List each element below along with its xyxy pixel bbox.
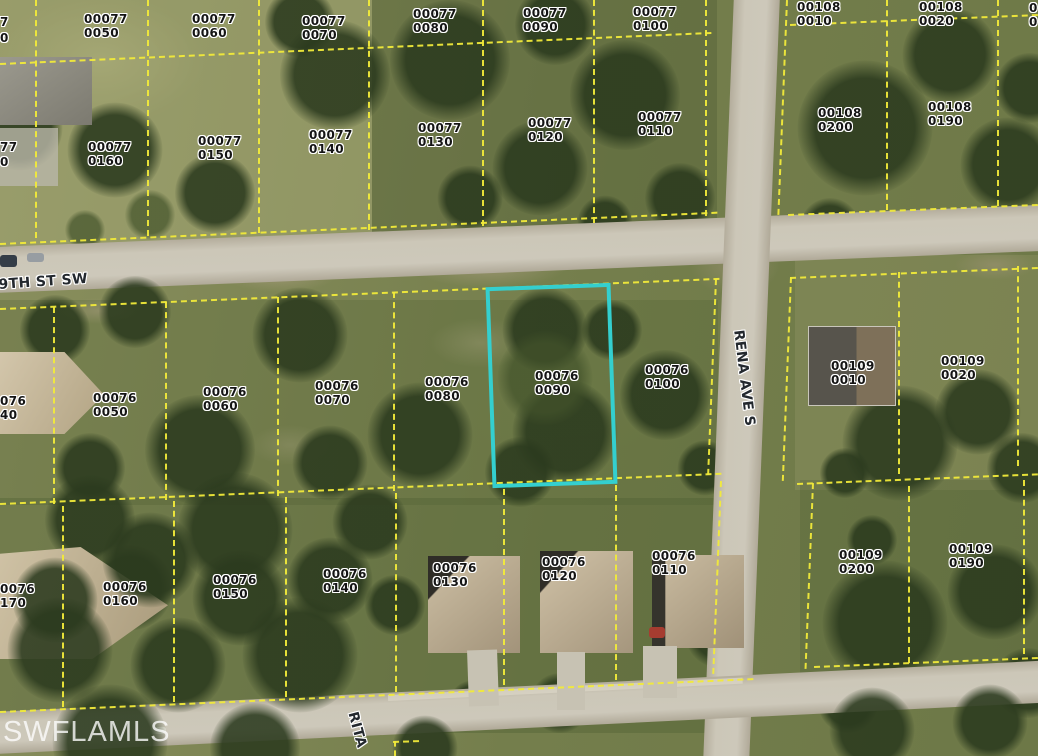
parcel-lot-number: 0160 <box>103 595 147 609</box>
parcel-label: 000770050 <box>84 13 128 40</box>
parcel-book-number: 00076 <box>213 574 257 588</box>
parcel-boundary-line <box>277 297 279 496</box>
parcel-book-number: 00108 <box>919 1 963 15</box>
parcel-book-number: 00077 <box>528 117 572 131</box>
parcel-book-number: 00076 <box>103 581 147 595</box>
parcel-lot-number: 0150 <box>198 149 242 163</box>
parcel-label-partial: 0 <box>0 156 9 170</box>
tree-icon <box>961 118 1038 213</box>
parcel-lot-number: 0060 <box>192 27 236 41</box>
parcel-label: 000760160 <box>103 581 147 608</box>
parcel-label: 000760120 <box>542 556 586 583</box>
parcel-boundary-line <box>165 302 167 500</box>
driveway <box>467 649 499 706</box>
car <box>0 255 17 267</box>
parcel-book-number: 00077 <box>309 129 353 143</box>
parcel-label: 000760090 <box>535 370 579 397</box>
parcel-book-number: 00076 <box>542 556 586 570</box>
parcel-boundary-line <box>777 0 788 215</box>
parcel-boundary-line <box>898 272 900 474</box>
parcel-label: 001090190 <box>949 543 993 570</box>
parcel-label: 000770130 <box>418 122 462 149</box>
parcel-label: 000770150 <box>198 135 242 162</box>
parcel-label: 001080020 <box>919 1 963 28</box>
parcel-lot-number: 0050 <box>84 27 128 41</box>
parcel-lot-number: 0090 <box>523 21 567 35</box>
parcel-book-number: 00077 <box>633 6 677 20</box>
parcel-label-partial: 0 <box>1029 16 1038 30</box>
parcel-lot-number: 0120 <box>528 131 572 145</box>
parcel-label: 000760130 <box>433 562 477 589</box>
parcel-label: 000760080 <box>425 376 469 403</box>
car <box>27 253 44 262</box>
parcel-boundary-line <box>482 0 484 226</box>
parcel-boundary-line <box>908 486 910 663</box>
parcel-lot-number: 0140 <box>309 143 353 157</box>
parcel-lot-number: 0160 <box>88 155 132 169</box>
parcel-book-number: 00108 <box>928 101 972 115</box>
parcel-book-number: 00076 <box>315 380 359 394</box>
parcel-book-number: 00076 <box>535 370 579 384</box>
parcel-label: 001090020 <box>941 355 985 382</box>
parcel-book-number: 00076 <box>323 568 367 582</box>
parcel-lot-number: 0050 <box>93 406 137 420</box>
parcel-label-partial: 0 <box>0 32 9 46</box>
dirt-patch <box>955 250 1035 280</box>
parcel-book-number: 00077 <box>198 135 242 149</box>
parcel-book-number: 00077 <box>413 8 457 22</box>
parcel-boundary-line <box>886 0 888 210</box>
aerial-parcel-map: 0007700500007700600007700700007700800007… <box>0 0 1038 756</box>
parcel-label: 000760140 <box>323 568 367 595</box>
parcel-lot-number: 0060 <box>203 400 247 414</box>
parcel-lot-number: 0100 <box>633 20 677 34</box>
parcel-label: 001080010 <box>797 1 841 28</box>
tree-icon <box>131 618 226 713</box>
parcel-lot-number: 0020 <box>941 369 985 383</box>
tree-icon <box>820 448 870 498</box>
parcel-boundary-line <box>782 277 792 481</box>
parcel-boundary-line <box>593 0 595 223</box>
parcel-book-number: 00108 <box>797 1 841 15</box>
tree-icon <box>953 685 1028 756</box>
parcel-lot-number: 0140 <box>323 582 367 596</box>
parcel-book-number: 00076 <box>425 376 469 390</box>
parcel-label: 001080190 <box>928 101 972 128</box>
watermark: SWFLAMLS <box>3 716 171 749</box>
parcel-book-number: 00077 <box>638 111 682 125</box>
parcel-lot-number: 0010 <box>831 374 875 388</box>
parcel-label-partial: 0076 <box>0 583 35 597</box>
parcel-label: 000760100 <box>645 364 689 391</box>
parcel-label-partial: 076 <box>0 395 26 409</box>
parcel-lot-number: 0070 <box>302 29 346 43</box>
parcel-lot-number: 0150 <box>213 588 257 602</box>
parcel-book-number: 00109 <box>941 355 985 369</box>
parcel-label-partial: 40 <box>0 409 18 423</box>
parcel-boundary-line <box>394 741 396 756</box>
parcel-boundary-line <box>393 292 395 491</box>
parcel-boundary-line <box>997 0 999 206</box>
parcel-book-number: 00076 <box>433 562 477 576</box>
parcel-lot-number: 0190 <box>928 115 972 129</box>
parcel-label: 001090200 <box>839 549 883 576</box>
parcel-label: 000770090 <box>523 7 567 34</box>
parcel-label: 000770080 <box>413 8 457 35</box>
parcel-label-partial: 7 <box>0 16 9 30</box>
parcel-label: 000770060 <box>192 13 236 40</box>
parcel-boundary-line <box>258 0 260 233</box>
parcel-lot-number: 0130 <box>418 136 462 150</box>
parcel-label: 000760050 <box>93 392 137 419</box>
parcel-label: 000760070 <box>315 380 359 407</box>
parcel-boundary-line <box>503 489 505 685</box>
parcel-boundary-line <box>615 485 617 680</box>
parcel-lot-number: 0090 <box>535 384 579 398</box>
parcel-label: 000770120 <box>528 117 572 144</box>
parcel-label-partial: 77 <box>0 141 18 155</box>
parcel-boundary-line <box>147 0 149 236</box>
parcel-lot-number: 0110 <box>652 564 696 578</box>
parcel-lot-number: 0020 <box>919 15 963 29</box>
tree-icon <box>995 53 1038 123</box>
parcel-boundary-line <box>35 0 37 238</box>
parcel-boundary-line <box>53 307 55 504</box>
parcel-lot-number: 0010 <box>797 15 841 29</box>
parcel-boundary-line <box>805 483 814 669</box>
parcel-book-number: 00076 <box>645 364 689 378</box>
parcel-boundary-line <box>173 501 175 702</box>
tree-icon <box>99 276 171 348</box>
parcel-boundary-line <box>395 493 397 692</box>
parcel-lot-number: 0070 <box>315 394 359 408</box>
parcel-lot-number: 0080 <box>425 390 469 404</box>
parcel-label: 000770110 <box>638 111 682 138</box>
parcel-label: 000770070 <box>302 15 346 42</box>
parcel-boundary-line <box>368 0 370 230</box>
parcel-boundary-line <box>285 497 287 697</box>
parcel-boundary-line <box>1023 480 1025 654</box>
parcel-label: 000760060 <box>203 386 247 413</box>
parcel-lot-number: 0110 <box>638 125 682 139</box>
parcel-book-number: 00077 <box>84 13 128 27</box>
parcel-book-number: 00109 <box>831 360 875 374</box>
tree-icon <box>253 288 348 383</box>
parcel-book-number: 00076 <box>203 386 247 400</box>
parcel-lot-number: 0200 <box>839 563 883 577</box>
parcel-lot-number: 0100 <box>645 378 689 392</box>
car <box>649 627 665 638</box>
parcel-book-number: 00076 <box>93 392 137 406</box>
tree-icon <box>175 153 255 233</box>
parcel-boundary-line <box>62 506 64 707</box>
parcel-book-number: 00077 <box>418 122 462 136</box>
parcel-book-number: 00108 <box>818 107 862 121</box>
parcel-lot-number: 0130 <box>433 576 477 590</box>
parcel-lot-number: 0190 <box>949 557 993 571</box>
parcel-label-partial: 170 <box>0 597 26 611</box>
parcel-book-number: 00077 <box>302 15 346 29</box>
parcel-book-number: 00076 <box>652 550 696 564</box>
parcel-lot-number: 0080 <box>413 22 457 36</box>
parcel-label: 000760150 <box>213 574 257 601</box>
parcel-lot-number: 0120 <box>542 570 586 584</box>
parcel-book-number: 00077 <box>523 7 567 21</box>
tree-icon <box>125 190 175 240</box>
parcel-label: 000760110 <box>652 550 696 577</box>
parcel-label-partial: 0 <box>1029 2 1038 16</box>
house <box>0 57 92 125</box>
parcel-label: 000770100 <box>633 6 677 33</box>
parcel-label: 001090010 <box>831 360 875 387</box>
parcel-book-number: 00077 <box>88 141 132 155</box>
driveway <box>643 646 677 698</box>
parcel-label: 000770140 <box>309 129 353 156</box>
driveway <box>557 652 585 710</box>
parcel-book-number: 00109 <box>949 543 993 557</box>
parcel-book-number: 00109 <box>839 549 883 563</box>
parcel-lot-number: 0200 <box>818 121 862 135</box>
parcel-label: 001080200 <box>818 107 862 134</box>
parcel-label: 000770160 <box>88 141 132 168</box>
parcel-boundary-line <box>1017 266 1019 466</box>
parcel-book-number: 00077 <box>192 13 236 27</box>
